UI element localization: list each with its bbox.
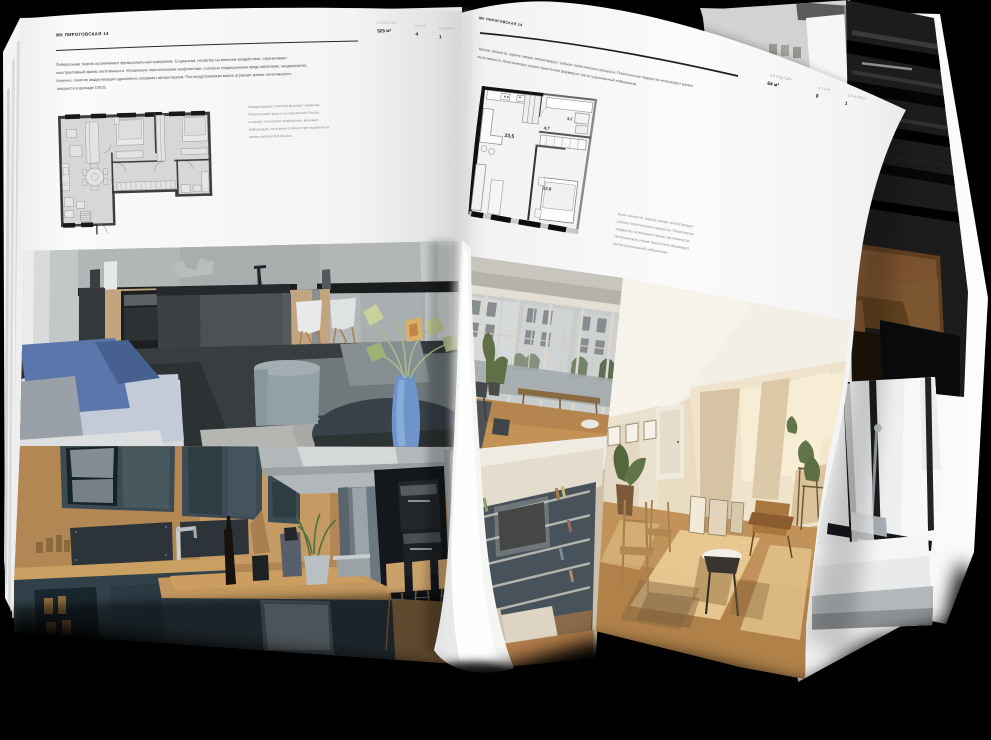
svg-text:ПЛОЩАДЬ: ПЛОЩАДЬ [377,20,397,25]
svg-text:525 м²: 525 м² [377,28,392,33]
svg-text:12,8: 12,8 [543,186,553,192]
svg-text:СПАЛЕН: СПАЛЕН [438,26,455,31]
svg-text:ЭТАЖ: ЭТАЖ [415,24,427,28]
svg-text:23,5: 23,5 [504,133,515,140]
